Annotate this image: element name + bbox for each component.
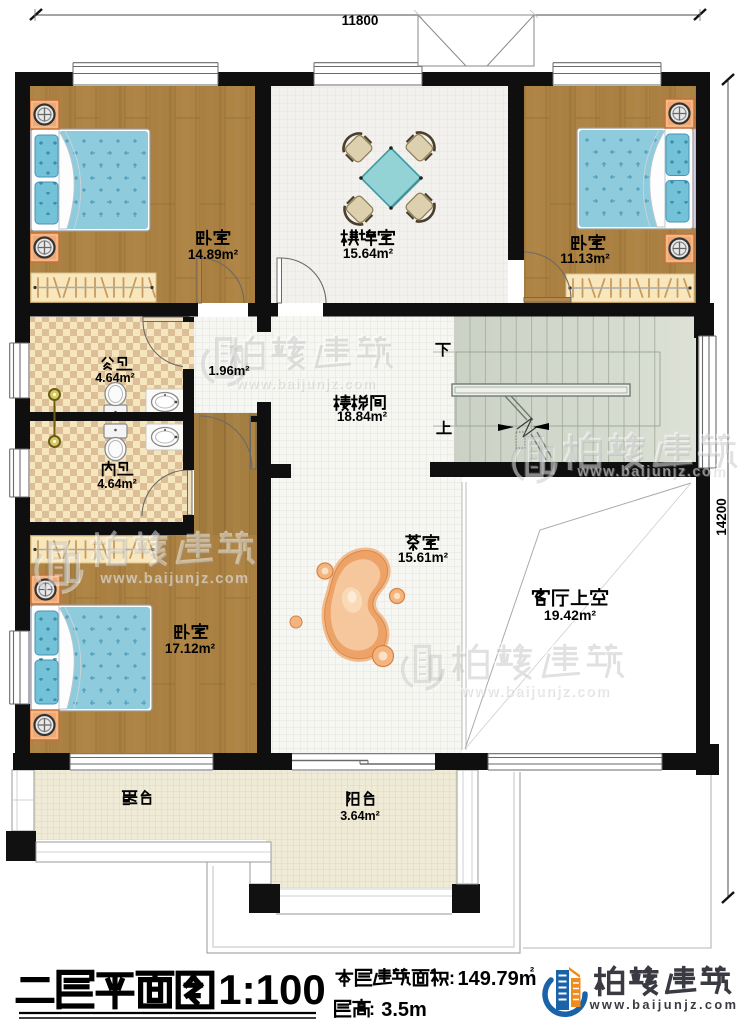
svg-text:14.89m²: 14.89m² [188, 247, 239, 262]
svg-text:149.79m: 149.79m [458, 968, 537, 990]
svg-text:1:100: 1:100 [218, 966, 325, 1013]
svg-text:14200: 14200 [714, 498, 729, 536]
svg-text:11.13m²: 11.13m² [560, 251, 610, 266]
svg-text:4.64m²: 4.64m² [95, 371, 135, 385]
svg-text:1.96m²: 1.96m² [208, 363, 250, 378]
svg-text:²: ² [530, 964, 535, 979]
svg-text::: : [449, 968, 455, 988]
svg-text::: : [369, 999, 375, 1019]
svg-text:3.5m: 3.5m [381, 999, 427, 1021]
svg-text:www.baijunjz.com: www.baijunjz.com [99, 571, 249, 587]
svg-text:www.baijunjz.com: www.baijunjz.com [235, 376, 377, 391]
svg-text:15.64m²: 15.64m² [343, 246, 394, 261]
svg-text:4.64m²: 4.64m² [97, 477, 137, 491]
svg-text:3.64m²: 3.64m² [340, 809, 380, 823]
svg-text:www.baijunjz.com: www.baijunjz.com [460, 684, 610, 700]
svg-text:www.baijunjz.com: www.baijunjz.com [589, 997, 739, 1012]
svg-text:18.84m²: 18.84m² [337, 409, 388, 424]
svg-text:19.42m²: 19.42m² [544, 607, 596, 623]
svg-text:15.61m²: 15.61m² [398, 550, 449, 565]
svg-text:17.12m²: 17.12m² [165, 641, 216, 656]
svg-text:www.baijunjz.com: www.baijunjz.com [576, 464, 726, 480]
svg-text:11800: 11800 [342, 13, 379, 28]
